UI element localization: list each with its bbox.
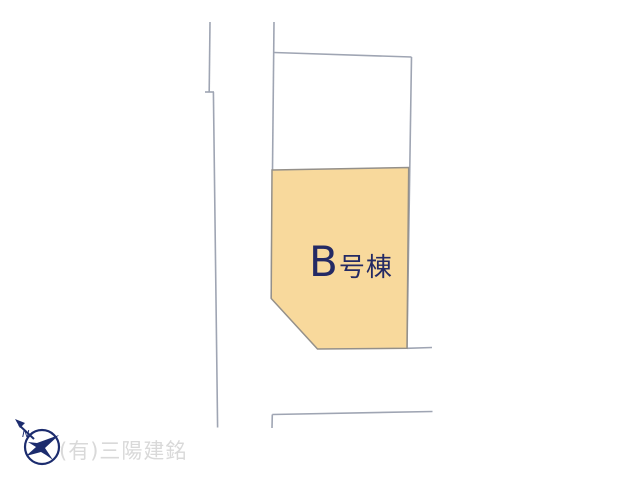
parcel-b-letter: B	[309, 238, 339, 286]
road-line-left-lower	[213, 92, 217, 428]
road-line-southeast-extension	[407, 348, 432, 349]
parcel-b-label: B 号棟	[309, 238, 393, 286]
parcel-b-suffix: 号棟	[339, 255, 393, 281]
site-plan: B 号棟 N (有)三陽建銘	[0, 0, 640, 480]
company-watermark: (有)三陽建銘	[59, 440, 187, 463]
boundary-line-north	[274, 53, 412, 58]
road-line-left-upper	[209, 22, 210, 92]
north-arrow-head	[15, 419, 25, 428]
bird-glyph	[26, 435, 59, 460]
road-line-south	[272, 412, 432, 415]
compass-n-label: N	[22, 429, 30, 440]
